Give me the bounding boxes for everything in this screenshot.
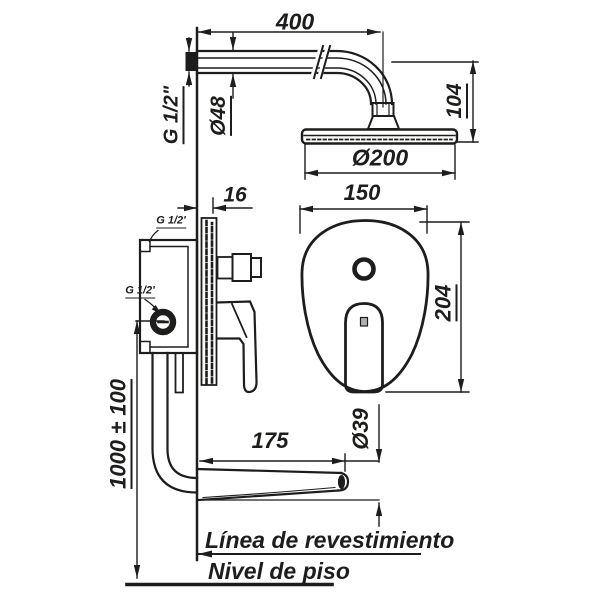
tiling-line-label: Línea de revestimiento: [205, 529, 454, 552]
thread-label-valve-top: G 1/2': [156, 216, 186, 229]
dia-label-flange: Ø48: [208, 96, 232, 136]
thread-label-valve-inlet: G 1/2': [125, 286, 155, 299]
floor-line-label: Nivel de piso: [208, 560, 350, 583]
dim-label-plate-height: 204: [433, 285, 458, 322]
brand-mark: [361, 318, 368, 327]
plate-front-view: [302, 221, 428, 392]
shower-head-disc: [302, 130, 457, 144]
lever-front-view: [346, 304, 383, 393]
dim-label-arm-length: 400: [276, 11, 314, 34]
arm-flange: [186, 52, 198, 71]
dia-label-head: Ø200: [352, 147, 408, 170]
shower-installation-linework: [0, 0, 600, 601]
dim-label-plate-thickness: 16: [223, 185, 246, 206]
dim-label-plate-width: 150: [344, 182, 381, 204]
spout-top: [197, 469, 341, 473]
diverter-button: [355, 260, 374, 279]
technical-diagram: 400 G 1/2" Ø48 104 Ø200 16 150 204 G 1/2…: [0, 0, 600, 601]
spout-bottom: [199, 491, 338, 501]
head-cone: [368, 116, 399, 129]
dia-label-spout: Ø39: [350, 408, 372, 450]
dim-label-head-drop: 104: [444, 83, 468, 118]
dim-label-install-height: 1000 ± 100: [108, 379, 133, 489]
plate-side-view: [202, 218, 217, 385]
thread-label-arm: G 1/2": [162, 86, 185, 144]
outlet-stub: [233, 254, 252, 281]
dim-label-spout-length: 175: [252, 430, 289, 452]
